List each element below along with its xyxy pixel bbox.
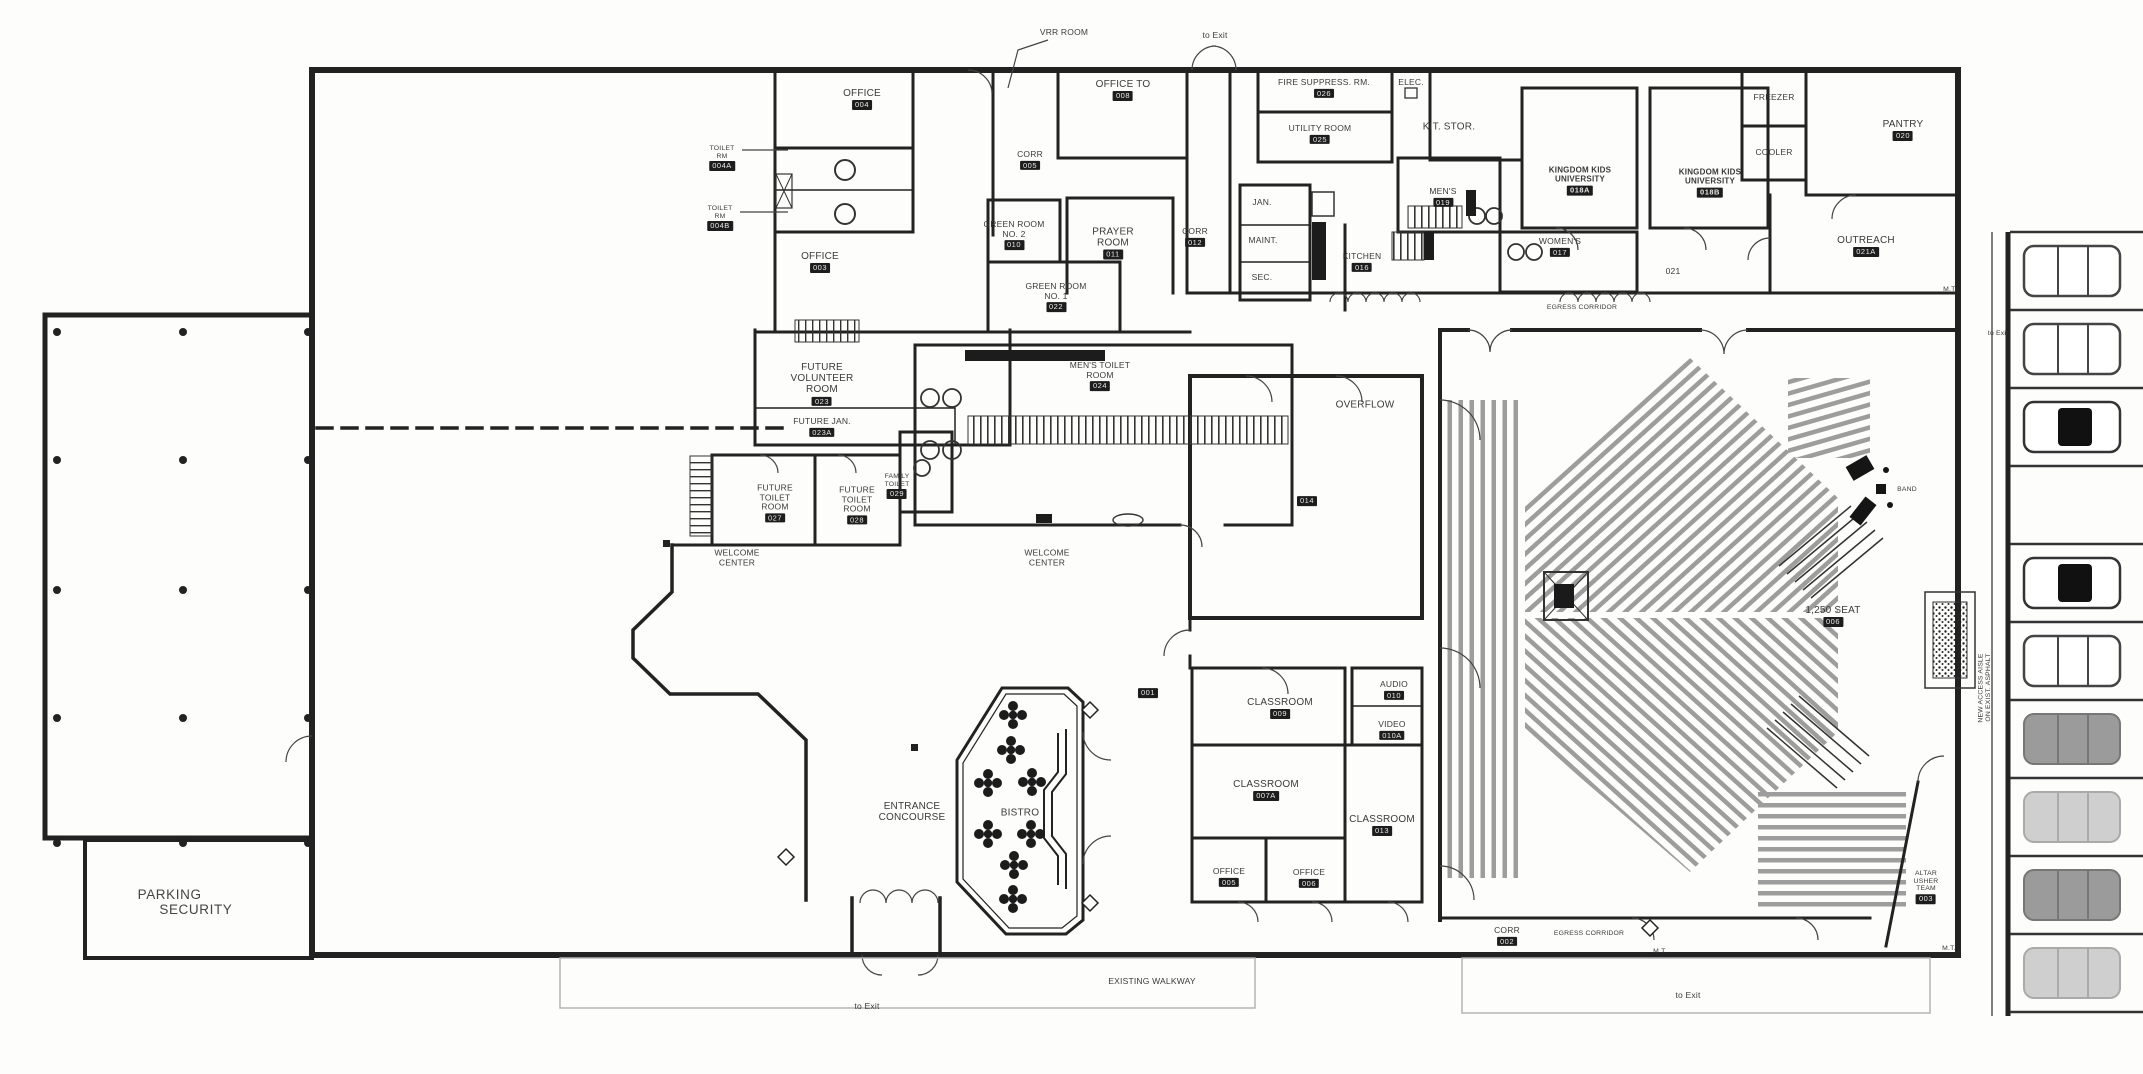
room-label-pantry: PANTRY020 — [1883, 119, 1924, 141]
label-mt-bottom-left: M.T. — [1653, 948, 1667, 956]
auditorium-seating — [1447, 358, 1906, 908]
exit-note: to Exit — [1202, 31, 1227, 41]
room-number: 003 — [810, 263, 830, 273]
room-number: 028 — [847, 515, 867, 525]
exit-note: to Exit — [1675, 991, 1700, 1001]
table-cluster — [1018, 768, 1046, 796]
room-label-office-005: OFFICE005 — [1213, 867, 1245, 887]
room-number-001: 001 — [1138, 688, 1158, 698]
room-label-fire-suppress: FIRE SUPPRESS. RM.026 — [1278, 78, 1370, 98]
room-name: OFFICE — [801, 251, 839, 262]
room-label-parking-security: PARKING SECURITY — [138, 887, 233, 917]
table-cluster — [997, 736, 1025, 764]
room-label-mens-toilet: MEN'S TOILET ROOM024 — [1070, 361, 1130, 391]
car — [2024, 948, 2120, 998]
car — [2024, 870, 2120, 920]
room-label-audio: AUDIO010 — [1380, 680, 1408, 700]
room-number: 008 — [1113, 91, 1133, 101]
mt-note: M.T. — [1943, 286, 1957, 294]
table-cluster — [1000, 851, 1028, 879]
room-number: 004A — [709, 161, 735, 171]
room-label-prayer-room: PRAYER ROOM011 — [1092, 226, 1134, 259]
room-name: PANTRY — [1883, 119, 1924, 130]
room-label-future-jan: FUTURE JAN.023A — [793, 417, 850, 437]
room-name: VRR ROOM — [1040, 28, 1088, 38]
room-name: OFFICE — [1213, 867, 1245, 877]
room-name: MEN'S — [1429, 187, 1456, 197]
room-label-sec: SEC. — [1252, 273, 1273, 283]
room-name: OUTREACH — [1837, 235, 1895, 246]
room-label-corr-bottom: CORR002 — [1494, 926, 1520, 946]
room-name: KIT. STOR. — [1423, 121, 1475, 132]
corridor-note: EGRESS CORRIDOR — [1554, 930, 1624, 938]
room-name: GREEN ROOM NO. 2 — [983, 220, 1044, 239]
exit-note: to Exit — [1988, 330, 2008, 338]
room-number: 005 — [1020, 160, 1040, 170]
room-label-classroom-013: CLASSROOM013 — [1349, 814, 1415, 836]
room-label-future-toilet-1: FUTURE TOILET ROOM027 — [757, 483, 793, 522]
room-number: 002 — [1497, 936, 1517, 946]
label-entrance-concourse: ENTRANCE CONCOURSE — [879, 801, 946, 823]
label-existing-walkway: EXISTING WALKWAY — [1108, 977, 1195, 987]
room-label-classroom-007a: CLASSROOM007A — [1233, 779, 1299, 801]
corridor-note: EGRESS CORRIDOR — [1547, 304, 1617, 312]
room-name: FREEZER — [1753, 93, 1794, 103]
room-label-corr-top: CORR005 — [1017, 150, 1043, 170]
room-number: 016 — [1352, 262, 1372, 272]
area-name: ENTRANCE CONCOURSE — [879, 801, 946, 823]
room-number: 006 — [1823, 617, 1843, 627]
car — [2024, 558, 2120, 608]
room-label-toilet-rm-a: TOILET RM004A — [709, 145, 735, 171]
car — [2024, 636, 2120, 686]
room-label-kku-a: KINGDOM KIDS UNIVERSITY018A — [1549, 167, 1611, 196]
room-name: FUTURE VOLUNTEER ROOM — [791, 362, 854, 396]
room-name: TOILET RM — [710, 145, 735, 160]
car — [2024, 714, 2120, 764]
exit-walkway-outline — [1462, 958, 1930, 1013]
room-number-plain: 021 — [1666, 267, 1681, 277]
room-label-future-volunteer: FUTURE VOLUNTEER ROOM023 — [791, 362, 854, 406]
room-label-overflow: OVERFLOW — [1336, 399, 1395, 410]
mt-note: M.T. — [1653, 948, 1667, 956]
room-number: 010A — [1379, 730, 1405, 740]
room-label-family-toilet: FAMILY TOILET029 — [885, 473, 910, 499]
seating-block-bottom-right — [1758, 792, 1906, 908]
room-name: FUTURE TOILET ROOM — [839, 485, 875, 514]
room-name: ALTAR USHER TEAM — [1914, 870, 1939, 893]
sink — [1508, 244, 1524, 260]
room-name: MEN'S TOILET ROOM — [1070, 361, 1130, 380]
room-number: 001 — [1138, 688, 1158, 698]
room-label-office-004: OFFICE004 — [843, 88, 881, 110]
room-number: 018A — [1567, 186, 1593, 196]
entrance-scallops — [860, 890, 938, 903]
room-number: 004B — [707, 221, 733, 231]
area-name: WELCOME CENTER — [714, 548, 759, 567]
room-number: 009 — [1270, 709, 1290, 719]
mop-sink — [1312, 192, 1334, 216]
room-number: 004 — [852, 100, 872, 110]
room-name: MAINT. — [1248, 236, 1277, 246]
exit-note: to Exit — [854, 1002, 879, 1012]
room-label-office-low: OFFICE003 — [801, 251, 839, 273]
room-label-classroom-009: CLASSROOM009 — [1247, 697, 1313, 719]
shaft — [1312, 222, 1326, 280]
room-name: OFFICE — [843, 88, 881, 99]
room-number: 026 — [1314, 88, 1334, 98]
room-number-overflow: 014 — [1297, 496, 1317, 506]
room-name: KITCHEN — [1343, 252, 1382, 262]
room-number: 014 — [1297, 496, 1317, 506]
label-mt-top: M.T. — [1943, 286, 1957, 294]
room-number: 019 — [1433, 197, 1453, 207]
table-cluster — [1017, 820, 1045, 848]
room-name: CLASSROOM — [1233, 779, 1299, 790]
table-cluster — [999, 885, 1027, 913]
room-number: 006 — [1299, 878, 1319, 888]
band-equipment — [1846, 455, 1893, 525]
car — [2024, 402, 2120, 452]
room-label-mens: MEN'S019 — [1429, 187, 1456, 207]
floor-plan-drawing — [0, 0, 2143, 1074]
room-name: FIRE SUPPRESS. RM. — [1278, 78, 1370, 88]
area-name: WELCOME CENTER — [1024, 548, 1069, 567]
room-label-kit-stor: KIT. STOR. — [1423, 121, 1475, 132]
room-number: 018B — [1697, 188, 1723, 198]
room-number: 021A — [1853, 247, 1879, 257]
toilet-fixture — [835, 204, 855, 224]
room-name: COOLER — [1755, 148, 1792, 158]
structural-columns — [53, 328, 1658, 936]
label-to-exit-right: to Exit — [1988, 330, 2008, 338]
room-label-toilet-rm-b: TOILET RM004B — [707, 205, 733, 231]
label-mt-bottom-right: M.T. — [1942, 945, 1956, 953]
site-note: EXISTING WALKWAY — [1108, 977, 1195, 987]
label-egress-corridor-top: EGRESS CORRIDOR — [1547, 304, 1617, 312]
elec-panel — [1405, 88, 1417, 98]
room-name: FUTURE TOILET ROOM — [757, 483, 793, 512]
room-number: 025 — [1310, 134, 1330, 144]
table-cluster — [974, 769, 1002, 797]
room-label-vrr-room: VRR ROOM — [1040, 28, 1088, 38]
seating-block-top-right — [1788, 378, 1870, 458]
parking-area — [1992, 232, 2143, 1016]
room-label-freezer: FREEZER — [1753, 93, 1794, 103]
room-number: 023A — [809, 427, 835, 437]
room-name: OFFICE TO — [1096, 79, 1151, 90]
room-label-elec: ELEC. — [1398, 78, 1424, 88]
room-name: OFFICE — [1293, 868, 1325, 878]
room-number: 020 — [1893, 131, 1913, 141]
room-number: 029 — [887, 489, 907, 499]
site-note: NEW ACCESS AISLE ON EXIST. ASPHALT — [1977, 653, 1992, 722]
room-number: 024 — [1090, 381, 1110, 391]
label-welcome-center-right: WELCOME CENTER — [1024, 548, 1069, 567]
room-label-kku-b: KINGDOM KIDS UNIVERSITY018B — [1679, 169, 1741, 198]
car — [2024, 246, 2120, 296]
floor-plan: VRR ROOM to Exit OFFICE004 TOILET RM004A… — [0, 0, 2143, 1074]
room-number: 003 — [1916, 894, 1936, 904]
room-name: KINGDOM KIDS UNIVERSITY — [1549, 167, 1611, 185]
room-name: PARKING SECURITY — [138, 887, 233, 917]
room-name: FUTURE JAN. — [793, 417, 850, 427]
room-number: 022 — [1046, 302, 1066, 312]
room-name: WOMEN'S — [1539, 237, 1581, 247]
toilet-stall-row — [968, 416, 1288, 444]
exterior-walkways — [560, 958, 1930, 1013]
vrr-leader-line — [1008, 40, 1048, 88]
room-name: SEC. — [1252, 273, 1273, 283]
room-name: CORR — [1017, 150, 1043, 160]
room-name: UTILITY ROOM — [1289, 124, 1352, 134]
room-label-altar-usher-team: ALTAR USHER TEAM003 — [1914, 870, 1939, 904]
room-number: 013 — [1372, 826, 1392, 836]
toilet-fixture — [835, 160, 855, 180]
car — [2024, 324, 2120, 374]
table-cluster — [974, 820, 1002, 848]
room-name: AUDIO — [1380, 680, 1408, 690]
stage-platform-hatch — [1933, 602, 1967, 678]
mens-stall-row — [1408, 206, 1462, 228]
label-bistro: BISTRO — [1001, 807, 1039, 818]
seating-block-left-columns — [1447, 400, 1519, 878]
room-name: FAMILY TOILET — [885, 473, 910, 488]
room-label-video: VIDEO010A — [1378, 720, 1405, 740]
stair — [690, 456, 712, 536]
room-name: KINGDOM KIDS UNIVERSITY — [1679, 169, 1741, 187]
room-name: OVERFLOW — [1336, 399, 1395, 410]
room-name: VIDEO — [1378, 720, 1405, 730]
room-number: 023 — [812, 396, 832, 406]
room-label-maint: MAINT. — [1248, 236, 1277, 246]
room-name: CORR — [1182, 227, 1208, 237]
area-name: BAND — [1897, 486, 1917, 494]
room-label-kitchen: KITCHEN016 — [1343, 252, 1382, 272]
room-name: PRAYER ROOM — [1092, 226, 1134, 248]
label-egress-corridor-bottom: EGRESS CORRIDOR — [1554, 930, 1624, 938]
stair — [795, 320, 859, 342]
room-number: 010 — [1004, 240, 1024, 250]
room-label-outreach: OUTREACH021A — [1837, 235, 1895, 257]
room-label-green-room-2: GREEN ROOM NO. 2010 — [983, 220, 1044, 250]
annex-hall-wall — [45, 315, 312, 838]
room-name: CLASSROOM — [1349, 814, 1415, 825]
column-diamond — [778, 849, 794, 865]
label-021: 021 — [1666, 267, 1681, 277]
label-1250-seat: 1,250 SEAT006 — [1805, 605, 1860, 627]
room-label-corr-mid: CORR012 — [1182, 227, 1208, 247]
room-label-green-room-1: GREEN ROOM NO. 1022 — [1025, 282, 1086, 312]
sink — [943, 389, 961, 407]
label-to-exit-bottom-right: to Exit — [1675, 991, 1700, 1001]
room-label-jan: JAN. — [1252, 198, 1271, 208]
label-new-access-aisle: NEW ACCESS AISLE ON EXIST. ASPHALT — [1977, 653, 1992, 722]
room-number: 017 — [1550, 247, 1570, 257]
sink — [921, 389, 939, 407]
table-cluster — [999, 701, 1027, 729]
room-number: 011 — [1103, 250, 1122, 260]
label-to-exit-top: to Exit — [1202, 31, 1227, 41]
room-name: GREEN ROOM NO. 1 — [1025, 282, 1086, 301]
room-name: CLASSROOM — [1247, 697, 1313, 708]
room-label-cooler: COOLER — [1755, 148, 1792, 158]
kitchen-equipment — [1392, 232, 1424, 260]
room-label-future-toilet-2: FUTURE TOILET ROOM028 — [839, 485, 875, 524]
label-to-exit-bottom-left: to Exit — [854, 1002, 879, 1012]
room-label-office-to: OFFICE TO008 — [1096, 79, 1151, 101]
toilet-leader-lines — [740, 150, 788, 212]
area-name: BISTRO — [1001, 807, 1039, 818]
label-welcome-center-left: WELCOME CENTER — [714, 548, 759, 567]
room-number: 012 — [1185, 237, 1205, 247]
room-number: 007A — [1253, 791, 1279, 801]
room-name: TOILET RM — [708, 205, 733, 220]
mt-note: M.T. — [1942, 945, 1956, 953]
room-number: 010 — [1384, 690, 1404, 700]
room-number: 027 — [765, 513, 785, 523]
room-name: ELEC. — [1398, 78, 1424, 88]
label-band: BAND — [1897, 486, 1917, 494]
room-label-utility: UTILITY ROOM025 — [1289, 124, 1352, 144]
room-name: JAN. — [1252, 198, 1271, 208]
room-name: CORR — [1494, 926, 1520, 936]
room-label-womens: WOMEN'S017 — [1539, 237, 1581, 257]
room-label-office-006: OFFICE006 — [1293, 868, 1325, 888]
area-name: 1,250 SEAT — [1805, 605, 1860, 616]
plumbing-fixtures — [690, 88, 1542, 536]
car — [2024, 792, 2120, 842]
room-number: 005 — [1219, 877, 1239, 887]
